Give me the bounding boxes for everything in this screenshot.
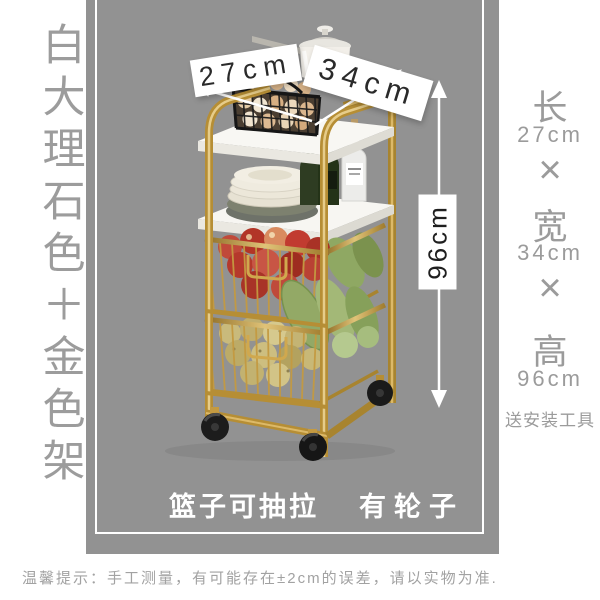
- height-value: 96cm: [422, 204, 453, 280]
- feature-pullout-label: 篮子可抽拉: [169, 485, 319, 524]
- frame-line-left: [95, 0, 97, 532]
- frame-line-bottom: [95, 532, 484, 534]
- footer-notice: 温馨提示：手工测量，有可能存在±2cm的误差，请以实物为准.: [0, 554, 600, 600]
- height-value-banner: 96cm: [419, 195, 457, 290]
- frame-line-right: [482, 0, 484, 532]
- multiply-icon: ×: [500, 266, 600, 311]
- floor-shadow: [165, 441, 395, 461]
- width-value: 34cm: [500, 240, 600, 266]
- bonus-tools-label: 送安装工具: [500, 406, 600, 431]
- vertical-product-title: 白大理石色＋金色架: [29, 22, 91, 522]
- spec-column: 长 27cm × 宽 34cm × 高 96cm 送安装工具: [500, 0, 600, 554]
- veggie-basket: [205, 273, 385, 403]
- feature-captions: 篮子可抽拉 有轮子: [110, 485, 523, 524]
- length-value: 27cm: [500, 122, 600, 148]
- multiply-icon: ×: [500, 148, 600, 193]
- feature-wheels-label: 有轮子: [359, 485, 464, 524]
- height-value-text: 96cm: [500, 366, 600, 392]
